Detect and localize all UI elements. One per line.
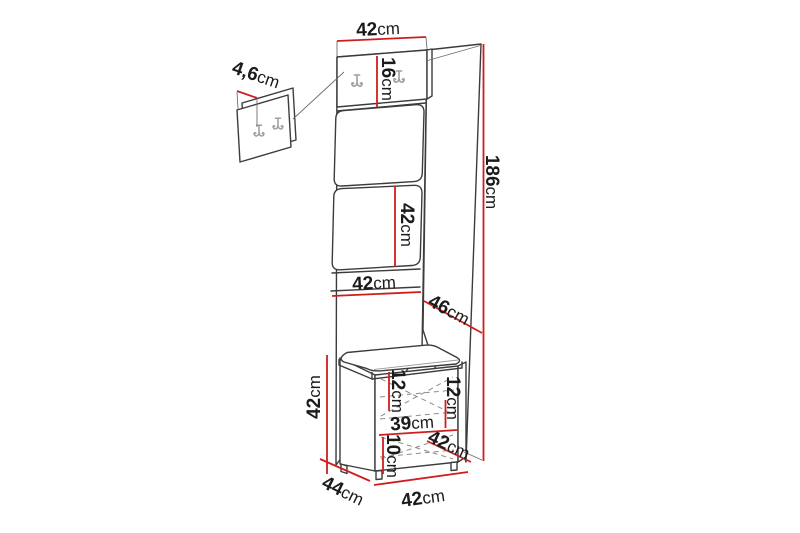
dim-label-drawer-width: 39cm (389, 411, 434, 435)
cabinet-foot (376, 471, 382, 480)
wall-hook-panel (237, 72, 344, 162)
dim-line-hook-panel-depth (237, 91, 257, 98)
hook-depth-extension-line (237, 92, 238, 109)
dim-label-total-height: 186cm (482, 155, 503, 209)
dim-label-cabinet-height: 42cm (304, 375, 325, 419)
dim-label-plinth-height: 10cm (383, 434, 404, 478)
diagram-canvas: 42cm 16cm 4,6cm 42cm 42cm 186cm 46cm 42c… (0, 0, 800, 533)
dim-label-hook-strip-height: 16cm (378, 57, 399, 101)
dim-label-hook-panel-depth: 4,6cm (229, 57, 282, 93)
dim-label-mid-panel-height: 42cm (397, 203, 418, 247)
dim-label-cabinet-depth: 44cm (319, 472, 368, 510)
furniture-diagram: 42cm 16cm 4,6cm 42cm 42cm 186cm 46cm 42c… (0, 0, 800, 533)
padded-panel-upper (334, 105, 424, 186)
cabinet-left-side (340, 358, 375, 471)
cabinet-foot (451, 462, 457, 471)
width-extension-right (426, 37, 427, 49)
dim-label-drawer-right-height: 12cm (443, 376, 464, 420)
hook-strip-side (427, 49, 432, 99)
dim-label-mid-panel-width: 42cm (352, 271, 397, 294)
dim-label-panel-top-width: 42cm (356, 17, 401, 40)
dim-label-cabinet-width: 42cm (400, 485, 446, 512)
dim-label-drawer-top-height: 12cm (388, 369, 409, 413)
